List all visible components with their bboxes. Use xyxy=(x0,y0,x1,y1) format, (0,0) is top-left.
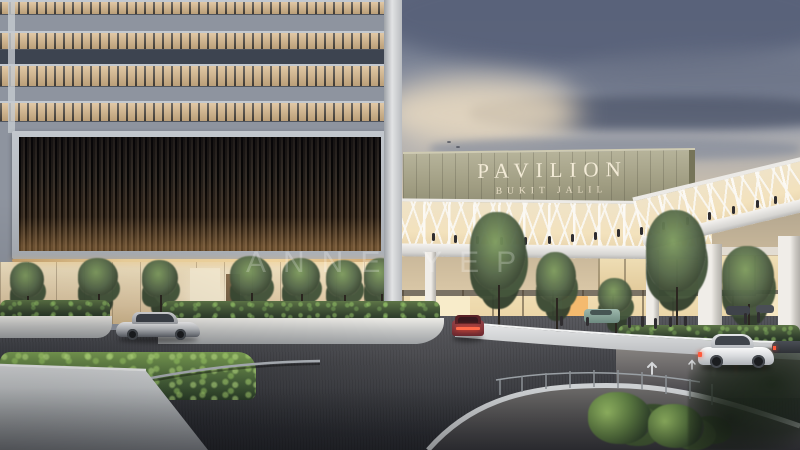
person-silhouette xyxy=(560,316,563,326)
shrub-cluster xyxy=(588,392,652,444)
lit-hedge-foreground xyxy=(0,352,256,400)
person-silhouette xyxy=(744,313,747,324)
person-silhouette xyxy=(432,233,435,241)
person-silhouette xyxy=(548,236,551,244)
person-silhouette xyxy=(669,317,672,327)
car-dark-partial xyxy=(772,338,800,356)
person-silhouette xyxy=(617,229,620,237)
sign-title: PAVILION xyxy=(403,156,695,185)
tree xyxy=(536,252,576,332)
tower-corner-column xyxy=(384,0,402,330)
car-silver-sedan xyxy=(116,312,200,340)
person-silhouette xyxy=(757,312,760,323)
tower-window-band xyxy=(0,0,402,15)
person-silhouette xyxy=(640,227,643,235)
person-silhouette xyxy=(756,200,759,208)
person-silhouette xyxy=(586,317,589,326)
tower-left-edge xyxy=(8,0,15,133)
car-teal-parked xyxy=(584,309,620,323)
tower-window-band xyxy=(0,31,402,50)
person-silhouette xyxy=(454,235,457,243)
watermark-text: ANNE YEP xyxy=(246,246,533,280)
tower-dark-band xyxy=(0,50,402,64)
car-red-rear xyxy=(452,315,484,339)
person-silhouette xyxy=(732,206,735,214)
car-white-sedan xyxy=(698,334,774,368)
bird xyxy=(447,141,451,143)
person-silhouette xyxy=(708,212,711,220)
planter-wall xyxy=(0,316,112,338)
person-silhouette xyxy=(684,316,687,326)
person-silhouette xyxy=(571,234,574,242)
person-silhouette xyxy=(654,318,657,329)
louver-screen-frame xyxy=(12,131,388,259)
person-silhouette xyxy=(774,196,777,204)
person-silhouette xyxy=(594,232,597,240)
person-silhouette xyxy=(628,317,631,328)
taillight xyxy=(456,327,480,330)
taillight xyxy=(698,352,702,357)
rendering-canvas: PAVILION BUKIT JALIL xyxy=(0,0,800,450)
office-tower xyxy=(0,0,402,330)
taillight xyxy=(773,346,776,350)
person-silhouette xyxy=(641,316,644,327)
planter-wall xyxy=(158,318,444,344)
bird xyxy=(456,146,460,148)
tower-window-band xyxy=(0,101,402,122)
louver-screen xyxy=(19,137,381,251)
tower-window-band xyxy=(0,64,402,87)
